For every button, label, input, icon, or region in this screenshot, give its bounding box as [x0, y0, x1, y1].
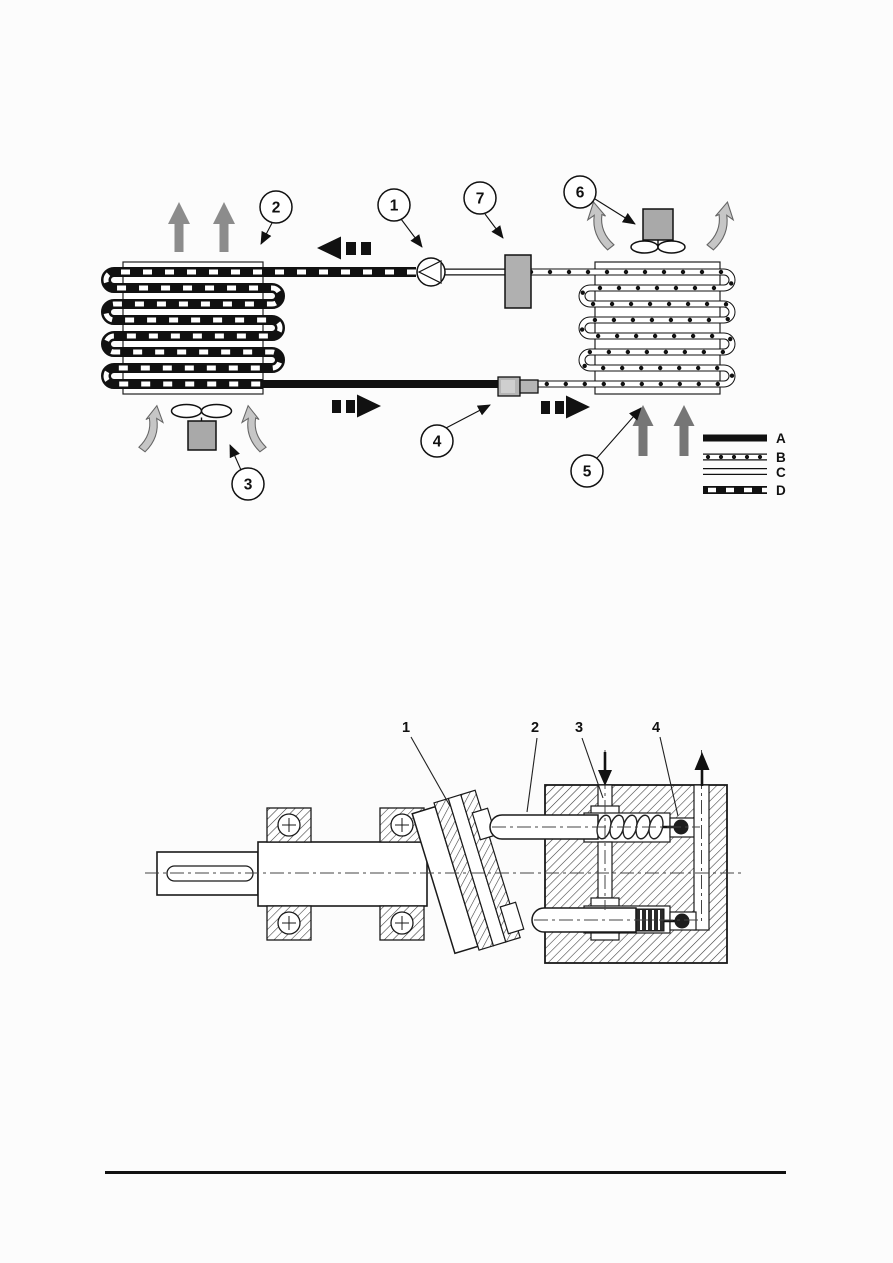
- condenser-fan: [172, 405, 232, 451]
- legend-item-C: C: [703, 465, 786, 480]
- legend-label-C: C: [776, 465, 786, 480]
- legend-item-D: D: [703, 483, 786, 498]
- fan-blade: [202, 405, 232, 418]
- callout-5-label: 5: [583, 464, 592, 481]
- fan-blade: [658, 241, 685, 253]
- airflow-up-arrows-condenser: [168, 202, 235, 252]
- part-label-1: 1: [402, 720, 410, 736]
- input-shaft: [157, 842, 427, 906]
- callout-7: 7: [464, 182, 496, 214]
- refrigeration-circuit-diagram: A B C D: [85, 170, 795, 515]
- condenser-coil-box: [123, 262, 263, 394]
- part-label-3: 3: [575, 720, 583, 736]
- shaft-body: [258, 842, 427, 906]
- bearing: [267, 808, 311, 842]
- callout-5: 5: [571, 455, 603, 487]
- legend-item-A: A: [703, 431, 786, 446]
- filter-drier: [505, 255, 531, 308]
- callout-3: 3: [232, 468, 264, 500]
- flow-direction-arrow-left: [317, 237, 371, 260]
- legend-item-B: B: [703, 450, 786, 465]
- callout-1-label: 1: [390, 198, 399, 215]
- callout-6: 6: [564, 176, 596, 208]
- bearing: [267, 906, 311, 940]
- fan-blade: [172, 405, 202, 418]
- evaporator-coil-box: [595, 262, 720, 394]
- line-style-legend: A B C D: [703, 431, 786, 498]
- legend-label-D: D: [776, 483, 786, 498]
- flow-direction-arrow-right-evap: [541, 396, 590, 419]
- legend-label-A: A: [776, 431, 786, 446]
- axial-piston-pump-cross-section: 1 2 3 4: [140, 705, 750, 975]
- compressor-symbol: [417, 258, 445, 286]
- evaporator-fan: [631, 209, 685, 253]
- part-label-2: 2: [531, 720, 539, 736]
- part-label-4: 4: [652, 720, 660, 736]
- outlet-flow-arrow: [695, 752, 710, 786]
- fan-motor: [188, 421, 216, 450]
- callout-2: 2: [260, 191, 292, 223]
- callout-2-label: 2: [272, 200, 281, 217]
- fan-motor: [643, 209, 673, 240]
- callout-1: 1: [378, 189, 410, 221]
- bearing: [380, 906, 424, 940]
- flow-direction-arrow-right-liquid: [332, 395, 381, 418]
- callout-3-label: 3: [244, 477, 253, 494]
- legend-label-B: B: [776, 450, 786, 465]
- document-page: A B C D: [0, 0, 893, 1263]
- check-valve-ball-lower: [675, 914, 690, 929]
- fan-blade: [631, 241, 658, 253]
- inlet-flow-arrow: [598, 752, 612, 786]
- footer-rule: [105, 1171, 786, 1174]
- callout-6-label: 6: [576, 185, 585, 202]
- callout-4-label: 4: [433, 434, 442, 451]
- expansion-device: [498, 377, 538, 396]
- callout-4: 4: [421, 425, 453, 457]
- callout-bubbles: 1 2 3 4 5 6 7: [232, 176, 603, 500]
- callout-7-label: 7: [476, 191, 485, 208]
- airflow-up-arrows-evaporator: [633, 405, 695, 456]
